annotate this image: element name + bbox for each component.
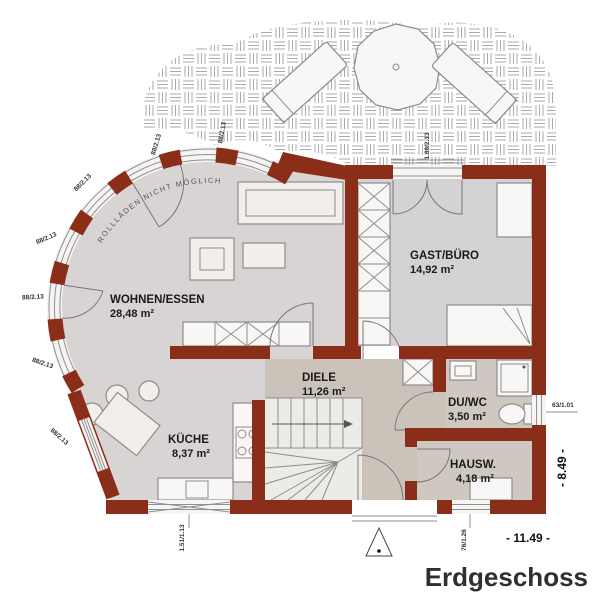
curve-window-label: 88/2.13 [22,293,44,301]
wc-window [532,395,578,425]
terrace-door-opening [391,160,464,179]
entrance-opening [352,500,437,521]
washbasin [450,361,476,380]
hausw-window [452,500,490,528]
room-area-duwc: 3,50 m² [448,411,486,423]
curve-window-label: 88/2.13 [31,357,54,371]
room-area-hausw: 4,18 m² [456,473,494,485]
room-label-hausw: HAUSW. [450,459,496,471]
duwc-left-wall [433,359,446,392]
wc-window-label: 63/1.01 [552,402,574,409]
room-label-gast: GAST/BÜRO [410,249,479,262]
room-area-wohnen: 28,48 m² [110,308,154,320]
room-label-kueche: KÜCHE [168,433,209,446]
total-height-dimension: - 8.49 - [555,449,569,487]
hausw-left-wall-bottom [405,481,417,500]
floor-plan-page: WOHNEN/ESSEN 28,48 m² GAST/BÜRO 14,92 m²… [0,0,600,600]
mid-wall-center [313,346,361,359]
kitchen-window-label: 1.51/1.13 [179,524,186,551]
total-width-dimension: - 11.49 - [506,531,550,545]
room-area-gast: 14,92 m² [410,264,454,276]
sofa [238,182,343,224]
hausw-left-wall-top [405,441,417,447]
entrance-marker [366,528,392,556]
toilet [499,404,532,424]
curve-window-label: 88/2.13 [73,173,94,194]
sideboard [183,322,310,346]
curve-window-label: 88/2.13 [35,231,58,246]
room-label-duwc: DU/WC [448,397,487,409]
side-table [243,243,285,268]
duwc-hausw-wall [405,428,532,441]
room-label-wohnen: WOHNEN/ESSEN [110,294,205,306]
kitchen-diele-wall [252,400,265,500]
stairs [265,398,362,500]
hall-cabinet [403,359,433,385]
desk [497,183,532,237]
page-title: Erdgeschoss [425,562,588,592]
terrace [142,20,556,166]
coffee-table [190,238,234,280]
room-area-kueche: 8,37 m² [172,448,210,460]
wardrobe-column [358,183,390,345]
curve-window-label: 88/2.13 [150,133,163,156]
hausw-window-label: 76/1.26 [461,529,468,551]
mid-wall-right [399,346,532,359]
mid-wall-left [170,346,270,359]
terrace-door-label: 1.88/2.13 [424,132,431,159]
shower [497,360,532,396]
gast-left-wall [345,165,358,359]
kitchen-window [148,500,230,528]
floor-plan-drawing: WOHNEN/ESSEN 28,48 m² GAST/BÜRO 14,92 m²… [0,0,600,600]
dining-chair [139,381,159,401]
room-label-diele: DIELE [302,372,336,384]
parasol [354,24,440,110]
right-wall [532,165,546,514]
room-area-diele: 11,26 m² [302,386,346,398]
bed [447,305,532,346]
